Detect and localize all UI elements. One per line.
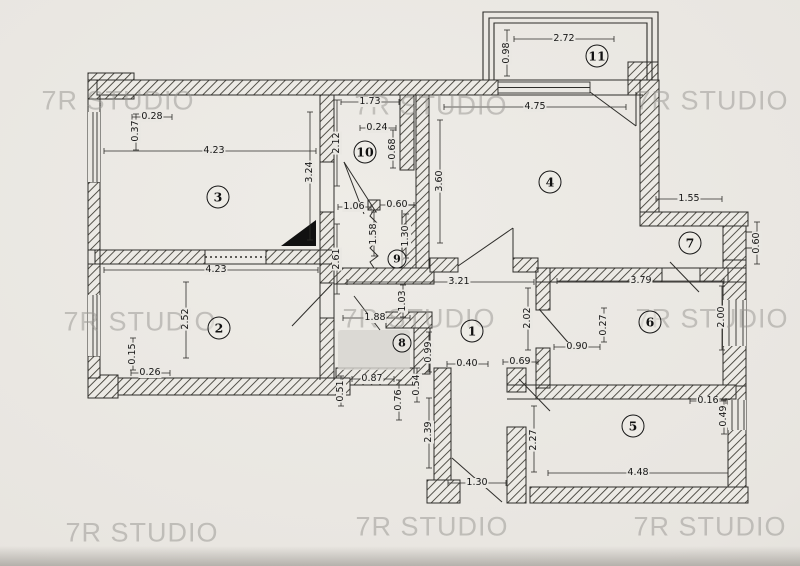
room-number: 4	[539, 171, 562, 194]
room-number: 9	[388, 250, 407, 269]
room-number: 1	[461, 320, 484, 343]
room-number: 3	[207, 186, 230, 209]
floor-plan-page: 7R STUDIO7R STUDIO7R STUDIO7R STUDIO7R S…	[0, 0, 800, 566]
room-number: 6	[639, 311, 662, 334]
room-numbers: 1234567891011	[0, 0, 800, 566]
room-number: 11	[586, 45, 609, 68]
room-number: 10	[354, 141, 377, 164]
room-number: 8	[393, 334, 412, 353]
room-number: 7	[679, 232, 702, 255]
room-number: 5	[622, 415, 645, 438]
room-number: 2	[208, 317, 231, 340]
